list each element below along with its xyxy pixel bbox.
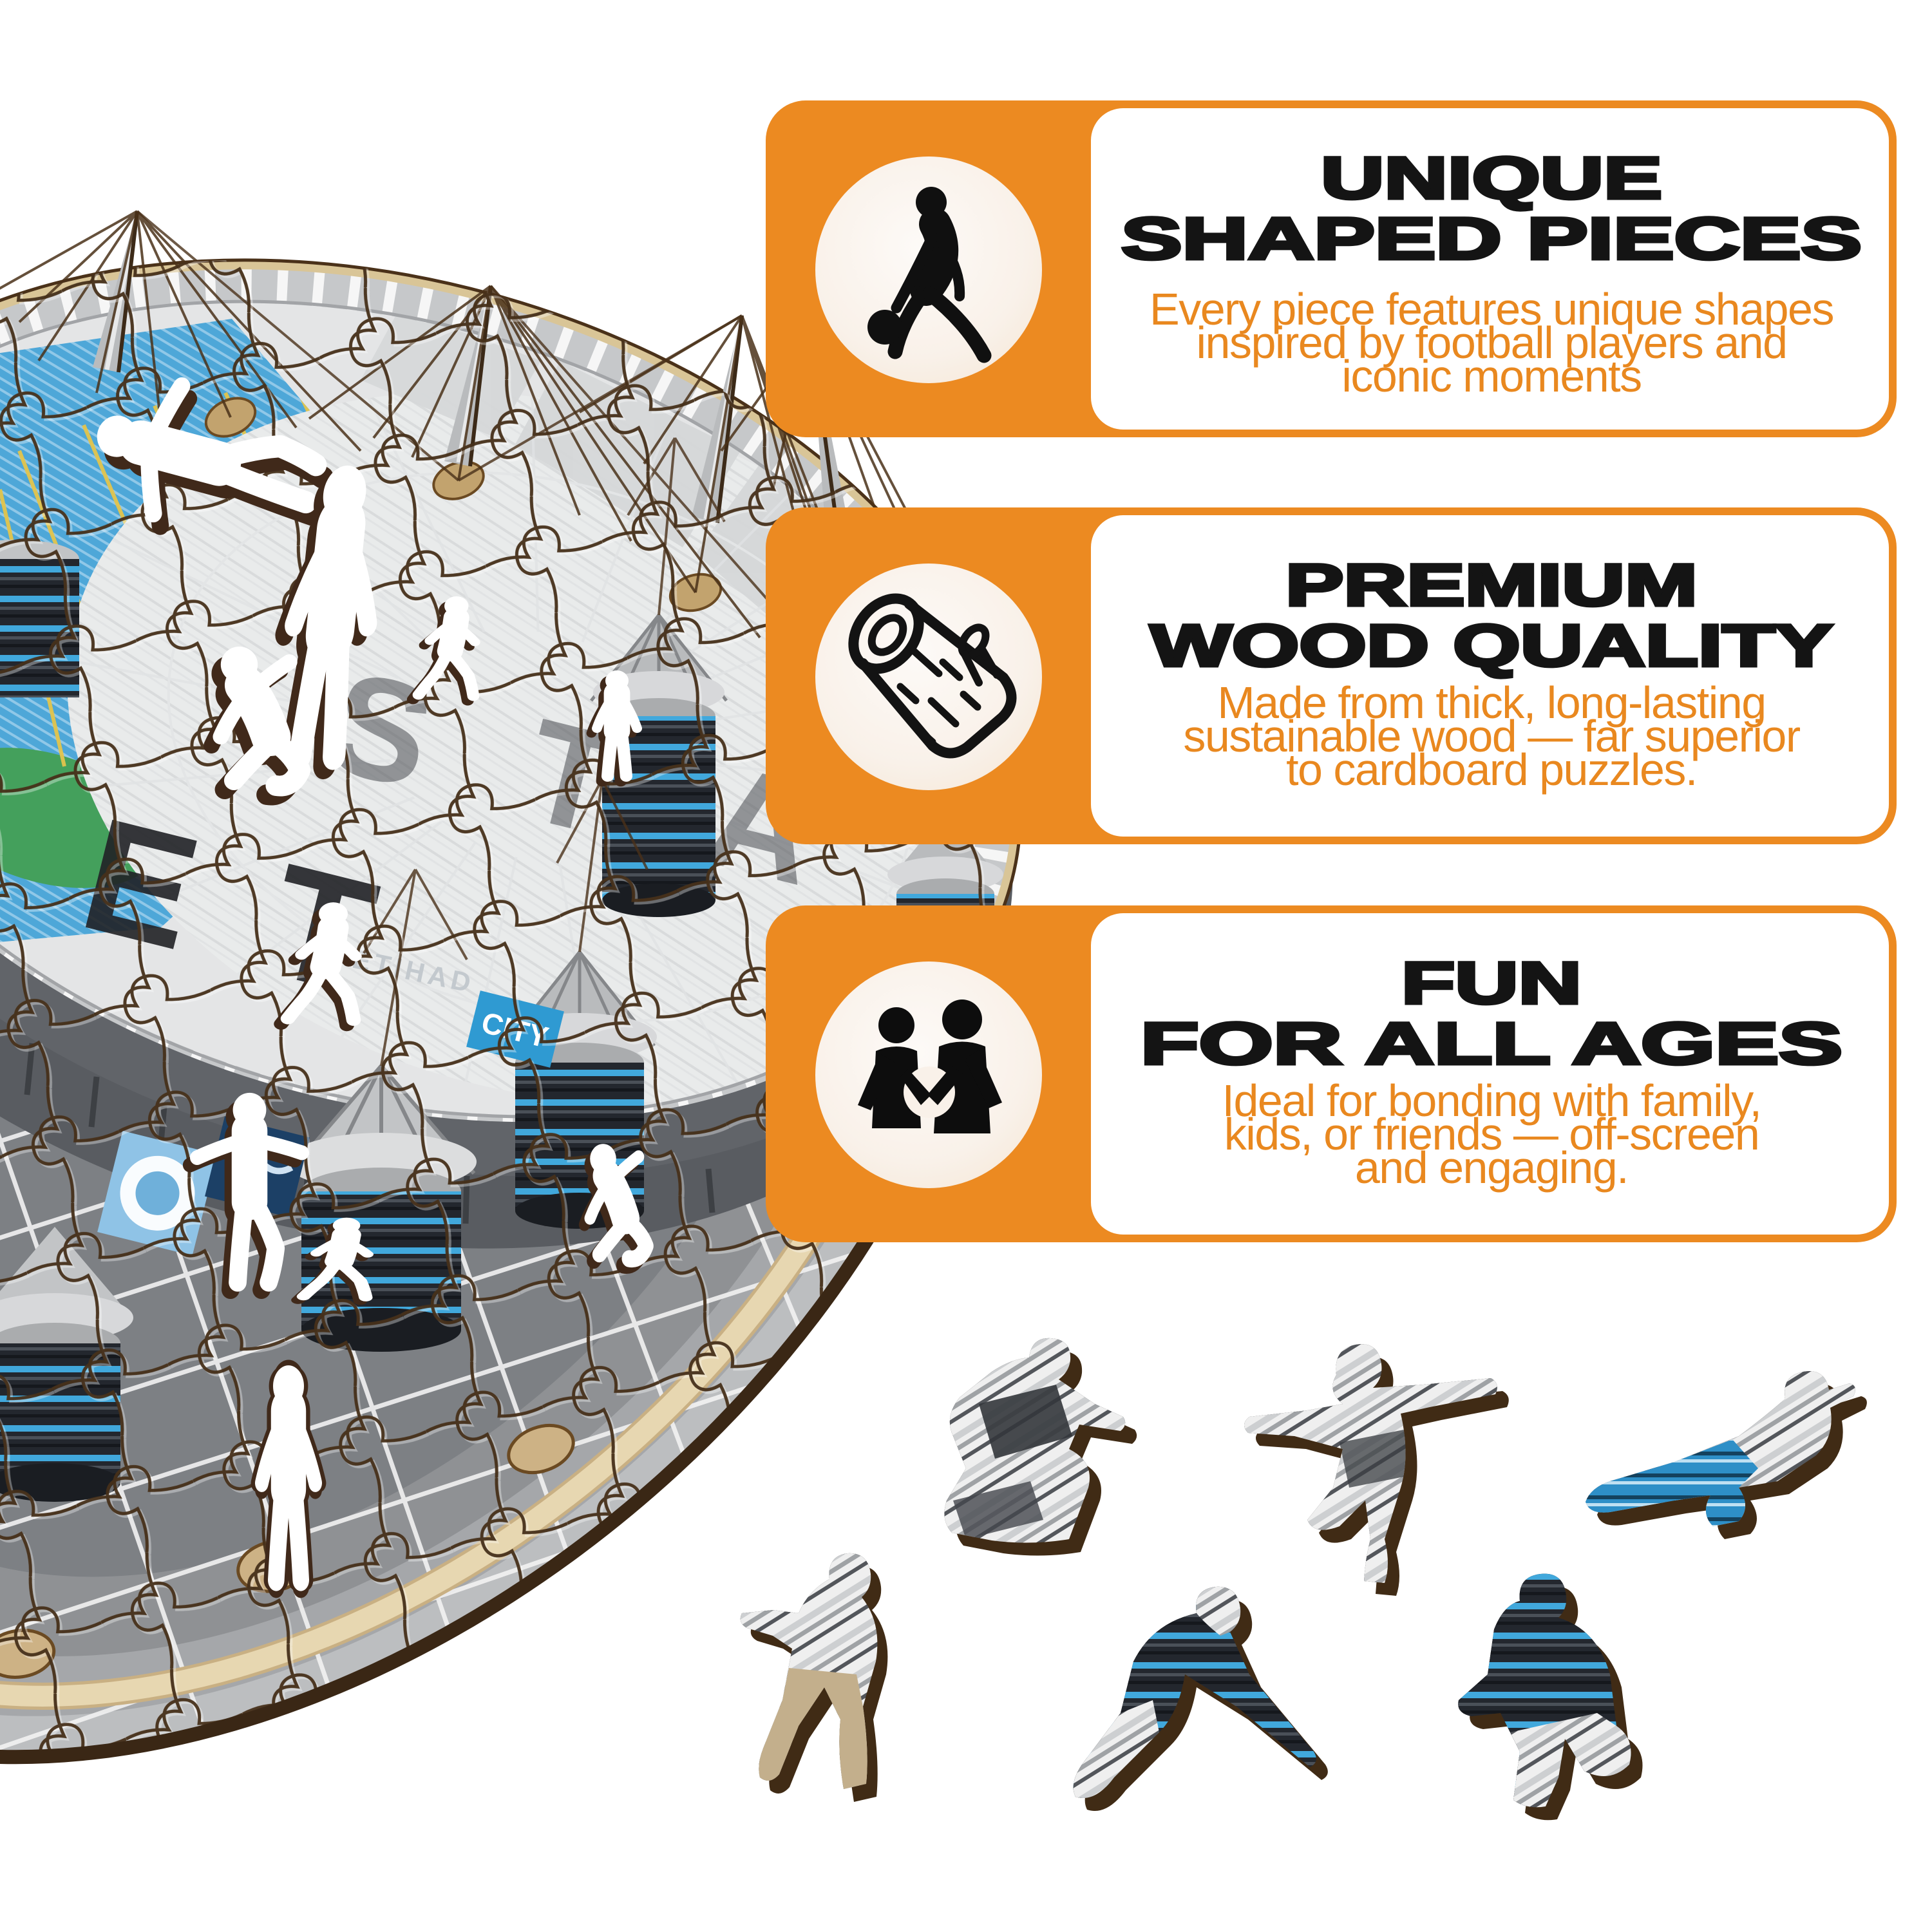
svg-text:FUN: FUN [1401, 951, 1582, 1016]
svg-text:PREMIUM: PREMIUM [1285, 553, 1698, 618]
svg-text:WOOD QUALITY: WOOD QUALITY [1150, 613, 1833, 679]
svg-text:iconic moments: iconic moments [1341, 351, 1641, 401]
svg-text:SHAPED PIECES: SHAPED PIECES [1121, 206, 1862, 272]
svg-text:to cardboard puzzles.: to cardboard puzzles. [1286, 744, 1697, 795]
svg-text:FOR ALL AGES: FOR ALL AGES [1141, 1011, 1842, 1077]
svg-text:UNIQUE: UNIQUE [1321, 146, 1662, 211]
svg-text:and engaging.: and engaging. [1355, 1142, 1628, 1193]
